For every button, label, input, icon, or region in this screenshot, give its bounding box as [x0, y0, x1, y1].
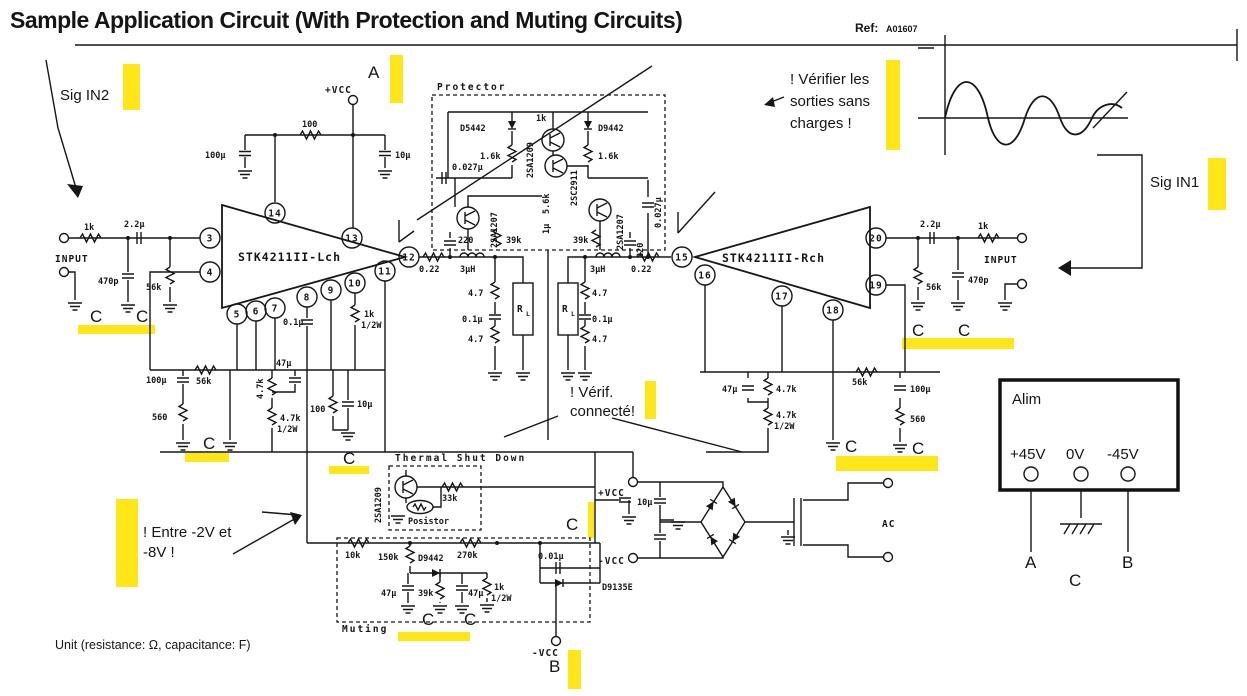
transistor-label: 2SA1209 [526, 142, 536, 178]
protector-title: Protector [437, 82, 506, 93]
pin-16: 16 [698, 271, 711, 282]
pin-18: 18 [826, 306, 839, 317]
pin-7: 7 [272, 304, 279, 315]
cap-label: 0.027µ [452, 163, 483, 173]
ind-label: 3µH [590, 265, 605, 275]
marker-a: A [1025, 553, 1037, 572]
cap-label: 47µ [468, 589, 483, 599]
cap-label: 470p [98, 277, 118, 287]
marker-c: C [912, 439, 924, 458]
entre-note: -8V ! [143, 544, 175, 561]
res-wattage: 1/2W [491, 594, 512, 604]
cap-label: 220 [458, 236, 473, 246]
posistor-label: Posistor [408, 516, 449, 527]
cap-label: 47µ [276, 359, 291, 369]
sig-in2-label: Sig IN2 [60, 87, 109, 104]
vcc-plus-label: +VCC [598, 488, 625, 499]
res-label: 1k [84, 223, 94, 233]
res-label: 5.6k [542, 194, 552, 214]
component-symbols [60, 96, 1072, 646]
res-label: 150k [378, 553, 398, 563]
page-title: Sample Application Circuit (With Protect… [10, 7, 682, 33]
res-label: 4.7 [468, 335, 483, 345]
schematic-page: Sample Application Circuit (With Protect… [0, 0, 1247, 696]
cap-label: 2.2µ [124, 220, 144, 230]
vcc-plus-label: +VCC [325, 85, 352, 96]
pin-11: 11 [378, 267, 391, 278]
verify-note: sorties sans [790, 93, 870, 110]
marker-c: C [90, 307, 102, 326]
pin-19: 19 [869, 281, 882, 292]
pin-8: 8 [304, 293, 311, 304]
diode-label: D9442 [598, 124, 624, 134]
highlighter-marks [78, 55, 1226, 689]
alim-0v: 0V [1066, 446, 1084, 463]
cap-label: 0.1µ [462, 315, 482, 325]
cap-label: 0.1µ [592, 315, 612, 325]
marker-c: C [422, 610, 434, 629]
res-label: 39k [506, 236, 521, 246]
thermal-title: Thermal Shut Down [395, 453, 526, 464]
marker-b: B [1122, 553, 1133, 572]
frame-line [75, 29, 1237, 61]
marker-c: C [912, 321, 924, 340]
res-label: 270k [457, 551, 477, 561]
cap-label: 2.2µ [920, 220, 940, 230]
amp-left-label: STK4211II-Lch [238, 250, 341, 264]
res-wattage: 1/2W [277, 425, 298, 435]
schematic-canvas: Sample Application Circuit (With Protect… [0, 0, 1247, 696]
res-label: 560 [152, 413, 167, 423]
unit-note: Unit (resistance: Ω, capacitance: F) [55, 638, 251, 652]
cap-label: 100µ [910, 385, 930, 395]
pin-5: 5 [234, 310, 241, 321]
verif-connecte-note: ! Vérif. [570, 384, 613, 401]
res-label: 100 [310, 405, 325, 415]
verify-note: ! Vérifier les [790, 71, 869, 88]
diode-label: D9442 [418, 554, 444, 564]
res-label: 39k [573, 236, 588, 246]
res-label: 1k [978, 222, 988, 232]
res-label: 4.7 [592, 335, 607, 345]
input-label: INPUT [984, 255, 1018, 266]
alim-box: Alim +45V 0V -45V A C B [1000, 380, 1178, 590]
pin-3: 3 [207, 234, 214, 245]
transistor-label: 2SA1207 [616, 214, 626, 250]
sig-in1-label: Sig IN1 [1150, 174, 1199, 191]
amp-right-label: STK4211II-Rch [722, 251, 825, 265]
entre-note: ! Entre -2V et [143, 524, 232, 541]
cap-label: 100µ [146, 376, 166, 386]
pin-20: 20 [869, 234, 882, 245]
marker-c: C [1069, 571, 1081, 590]
marker-c: C [343, 449, 355, 468]
alim-title: Alim [1012, 391, 1041, 408]
cap-label: 10µ [395, 151, 410, 161]
marker-c: C [566, 515, 578, 534]
res-label: 56k [146, 283, 161, 293]
load-label: R [562, 304, 569, 315]
res-label: 4.7k [776, 385, 796, 395]
res-label: 56k [852, 378, 867, 388]
res-label: 33k [442, 494, 457, 504]
alim-minus45: -45V [1107, 446, 1139, 463]
pin-17: 17 [775, 292, 788, 303]
pin-6: 6 [253, 307, 260, 318]
highlight [116, 499, 138, 587]
marker-c: C [464, 610, 476, 629]
res-label: 0.22 [631, 265, 651, 275]
highlight [886, 60, 900, 150]
marker-c: C [203, 434, 215, 453]
load-label: R [517, 304, 524, 315]
cap-label: 47µ [722, 385, 737, 395]
ac-label: AC [882, 519, 895, 530]
ref-value: A01607 [886, 24, 918, 34]
diode-label: D9135E [602, 583, 633, 593]
load-sub: L [571, 310, 575, 318]
res-label: 4.7 [592, 289, 607, 299]
res-label: 100 [302, 120, 317, 130]
cap-label: 0.027µ [654, 197, 664, 228]
res-label: 1k [494, 583, 504, 593]
res-label: 0.22 [419, 265, 439, 275]
res-label: 1k [536, 114, 546, 124]
res-label: 560 [910, 415, 925, 425]
res-label: 4.7k [256, 379, 266, 399]
pin-15: 15 [675, 253, 688, 264]
pin-13: 13 [345, 234, 358, 245]
marker-c: C [845, 437, 857, 456]
highlight [645, 381, 656, 419]
cap-label: 10µ [357, 400, 372, 410]
cap-label: 220 [636, 243, 646, 258]
verif-connecte-note: connecté! [570, 403, 635, 420]
load-sub: L [526, 310, 530, 318]
pin-12: 12 [402, 253, 415, 264]
pin-10: 10 [348, 279, 361, 290]
diode-label: D5442 [460, 124, 486, 134]
ind-label: 3µH [460, 265, 475, 275]
highlight [836, 456, 938, 471]
highlight [390, 55, 403, 103]
res-label: 56k [926, 283, 941, 293]
highlight [588, 502, 594, 538]
res-wattage: 1/2W [774, 422, 795, 432]
input-label: INPUT [55, 254, 89, 265]
highlight [123, 64, 140, 110]
verify-note: charges ! [790, 115, 852, 132]
ref-label: Ref: [855, 21, 878, 35]
cap-label: 47µ [381, 589, 396, 599]
transistor-label: 2SA1207 [490, 212, 500, 248]
res-label: 56k [196, 377, 211, 387]
highlight [78, 325, 155, 334]
highlight [1208, 158, 1226, 210]
res-wattage: 1/2W [361, 321, 382, 331]
amp-left: STK4211II-Lch [222, 205, 405, 308]
res-label: 4.7 [468, 289, 483, 299]
alim-plus45: +45V [1010, 446, 1045, 463]
highlight [398, 632, 470, 641]
res-label: 4.7k [776, 411, 796, 421]
cap-label: 0.1µ [283, 318, 303, 328]
highlight [568, 650, 581, 689]
cap-label: 1µ [542, 224, 552, 234]
pin-9: 9 [328, 286, 335, 297]
marker-a: A [368, 63, 380, 82]
transistor-label: 2SC2911 [570, 170, 580, 206]
pin-4: 4 [207, 268, 214, 279]
cap-label: 10µ [637, 498, 652, 508]
res-label: 39k [418, 589, 433, 599]
cap-label: 100µ [205, 151, 225, 161]
marker-b: B [549, 657, 560, 676]
cap-label: 470p [968, 276, 988, 286]
res-label: 1.6k [598, 152, 618, 162]
muting-title: Muting [342, 624, 388, 635]
pin-14: 14 [268, 209, 281, 220]
marker-c: C [136, 307, 148, 326]
marker-c: C [958, 321, 970, 340]
res-label: 1k [364, 310, 374, 320]
res-label: 10k [345, 551, 360, 561]
res-label: 1.6k [480, 152, 500, 162]
res-label: 4.7k [280, 414, 300, 424]
highlight [185, 453, 229, 462]
transistor-label: 2SA1209 [374, 487, 384, 523]
cap-label: 0.01µ [538, 552, 564, 562]
vcc-minus-label: -VCC [598, 556, 625, 567]
